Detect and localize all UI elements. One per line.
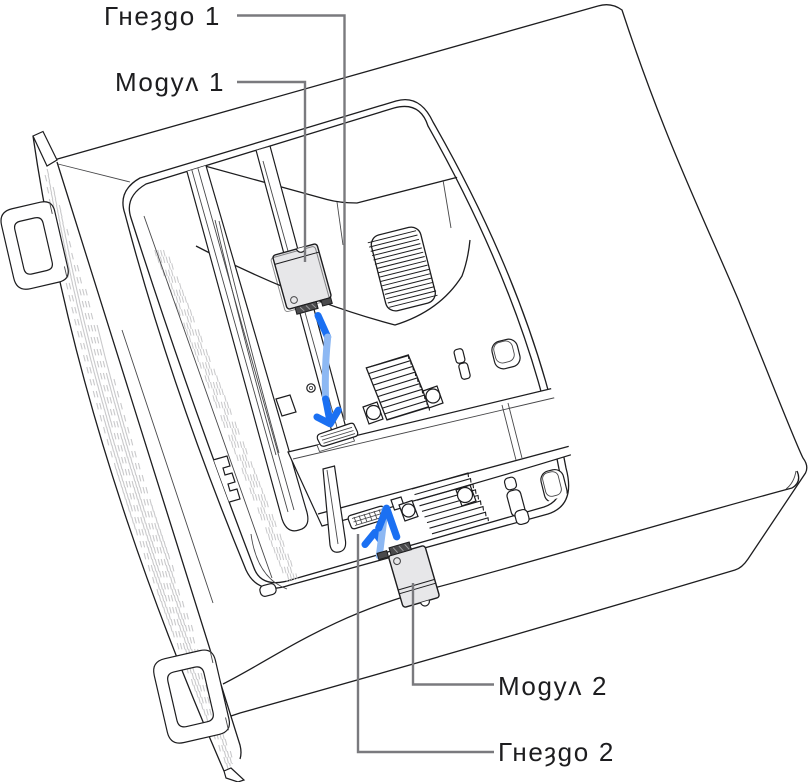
svg-text:Mоgyʌ 1: Mоgyʌ 1 [115, 67, 225, 97]
svg-text:Гнеȝgо 1: Гнеȝgо 1 [104, 1, 221, 31]
svg-text:Гнеȝgо 2: Гнеȝgо 2 [498, 737, 615, 767]
svg-text:Mоgyʌ 2: Mоgyʌ 2 [498, 671, 608, 701]
